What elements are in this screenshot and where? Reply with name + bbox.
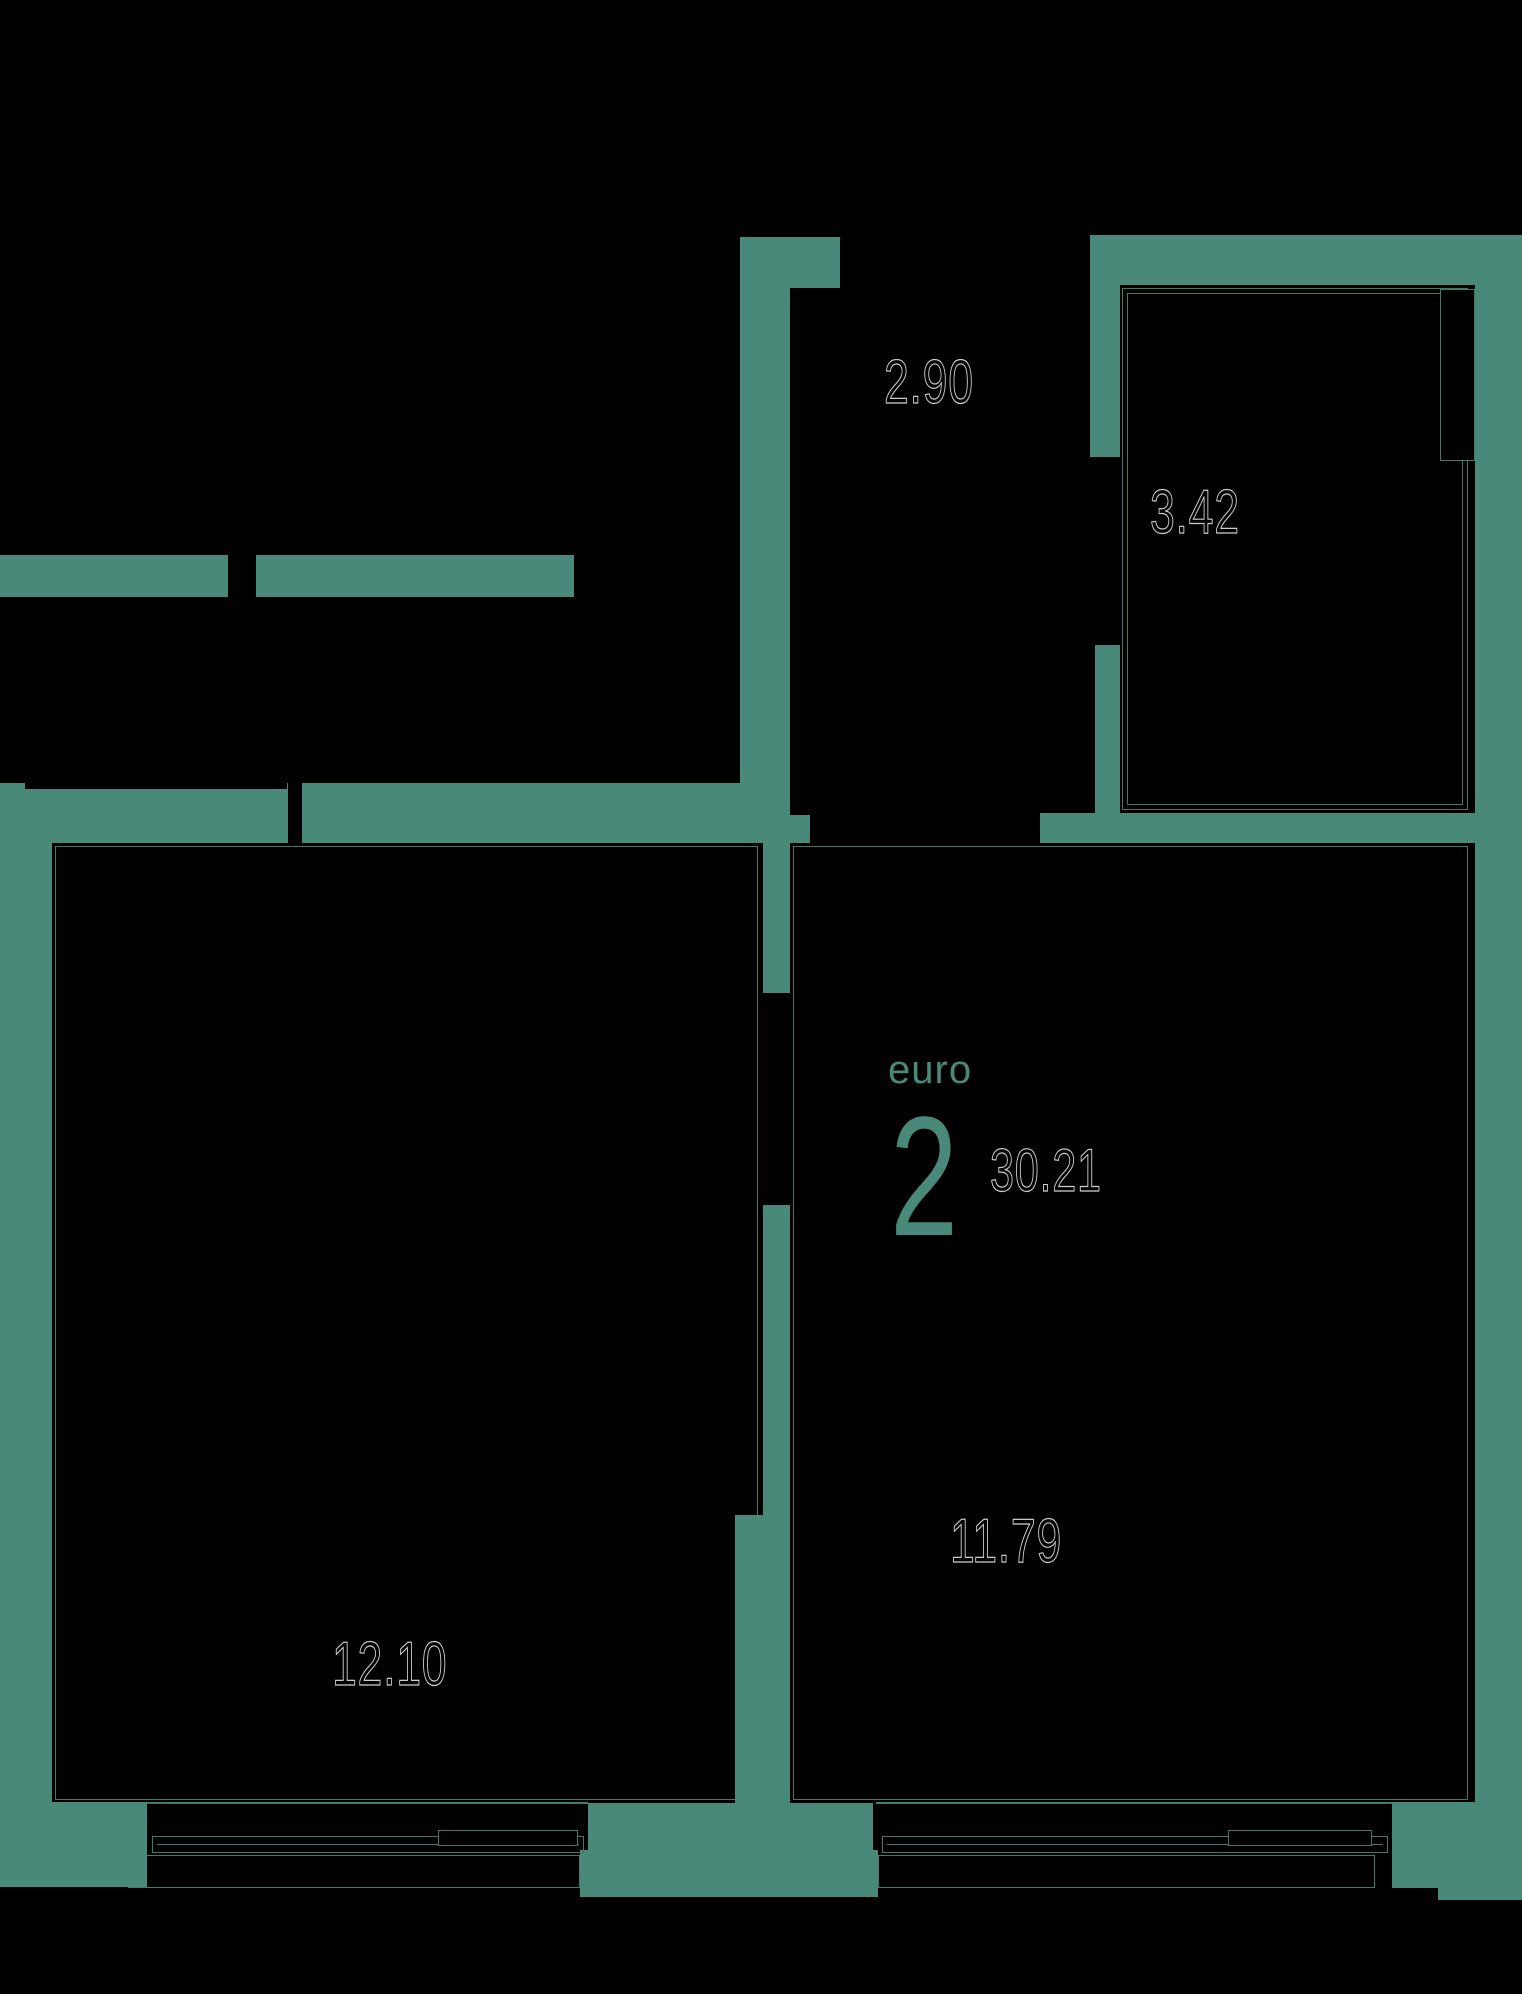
wall-upper-left-segment-b <box>256 555 578 597</box>
area-label-top-right-room: 3.42 <box>1150 482 1240 544</box>
wall-central-bottom <box>735 1515 790 1803</box>
pier-bottom-center-lower <box>580 1850 878 1897</box>
wall-joint-slot <box>288 783 302 843</box>
wall-central-upper <box>740 237 790 843</box>
wall-right-outer <box>1475 285 1522 1802</box>
wall-upper-left-segment-a <box>0 555 228 597</box>
wall-central-mid-lower <box>763 1205 790 1515</box>
pier-bottom-right <box>1392 1802 1522 1888</box>
area-label-hallway: 2.90 <box>884 352 974 414</box>
floor-plan: 2.90 3.42 11.79 12.10 euro 2 30.21 <box>0 0 1522 1994</box>
wall-central-mid-upper <box>763 843 790 993</box>
room-bottom-right-outline <box>793 846 1468 1800</box>
area-label-bottom-right-room: 11.79 <box>950 1511 1062 1573</box>
wall-left-outer <box>0 783 52 1802</box>
window-right-sash <box>1228 1830 1372 1846</box>
unit-rooms-count: 2 <box>890 1092 958 1262</box>
shaft-niche <box>1440 289 1475 461</box>
window-right-sill-line <box>876 1802 1392 1804</box>
unit-total-area: 30.21 <box>990 1141 1102 1201</box>
balcony-left-outline <box>128 1855 580 1888</box>
pier-bottom-center-upper <box>588 1803 873 1850</box>
window-left-sash <box>438 1830 578 1846</box>
wall-face-line <box>25 783 287 789</box>
area-label-bottom-left-room: 12.10 <box>332 1634 447 1696</box>
room-top-right-outline-inner <box>1127 293 1463 805</box>
window-left-sill-line <box>147 1802 588 1804</box>
wall-door-jamb-stub <box>790 815 810 843</box>
wall-middle-band-left <box>0 783 790 843</box>
door-jamb-line <box>574 551 578 601</box>
pier-bottom-left <box>0 1802 147 1887</box>
wall-hall-right-lower <box>1095 645 1120 813</box>
wall-middle-band-right <box>1040 813 1475 843</box>
wall-top-right-horizontal <box>1090 235 1522 285</box>
pier-bottom-right-step <box>1438 1888 1522 1900</box>
balcony-right-outline <box>878 1855 1375 1888</box>
